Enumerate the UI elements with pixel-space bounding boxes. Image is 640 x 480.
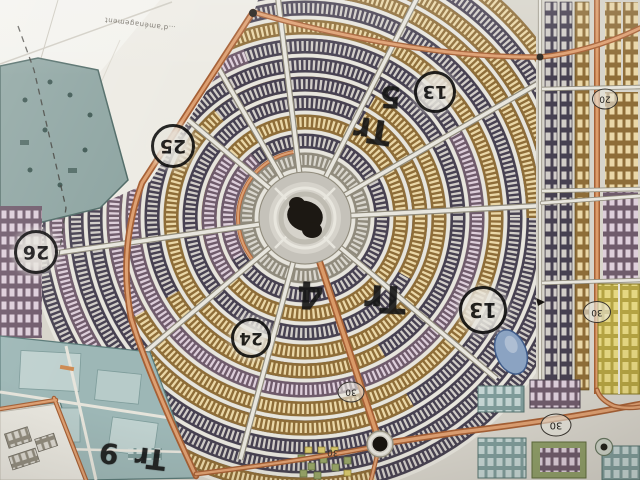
yellow-zone bbox=[598, 284, 640, 394]
left-edge-parcels bbox=[0, 206, 42, 338]
map-image bbox=[0, 0, 640, 480]
junction-dot bbox=[537, 54, 544, 61]
central-plaza bbox=[259, 172, 351, 264]
development-plan-map-photo: …d'aménagement Tr5Tr 4Tr 925262413133020… bbox=[0, 0, 640, 480]
junction-dot bbox=[249, 9, 257, 17]
